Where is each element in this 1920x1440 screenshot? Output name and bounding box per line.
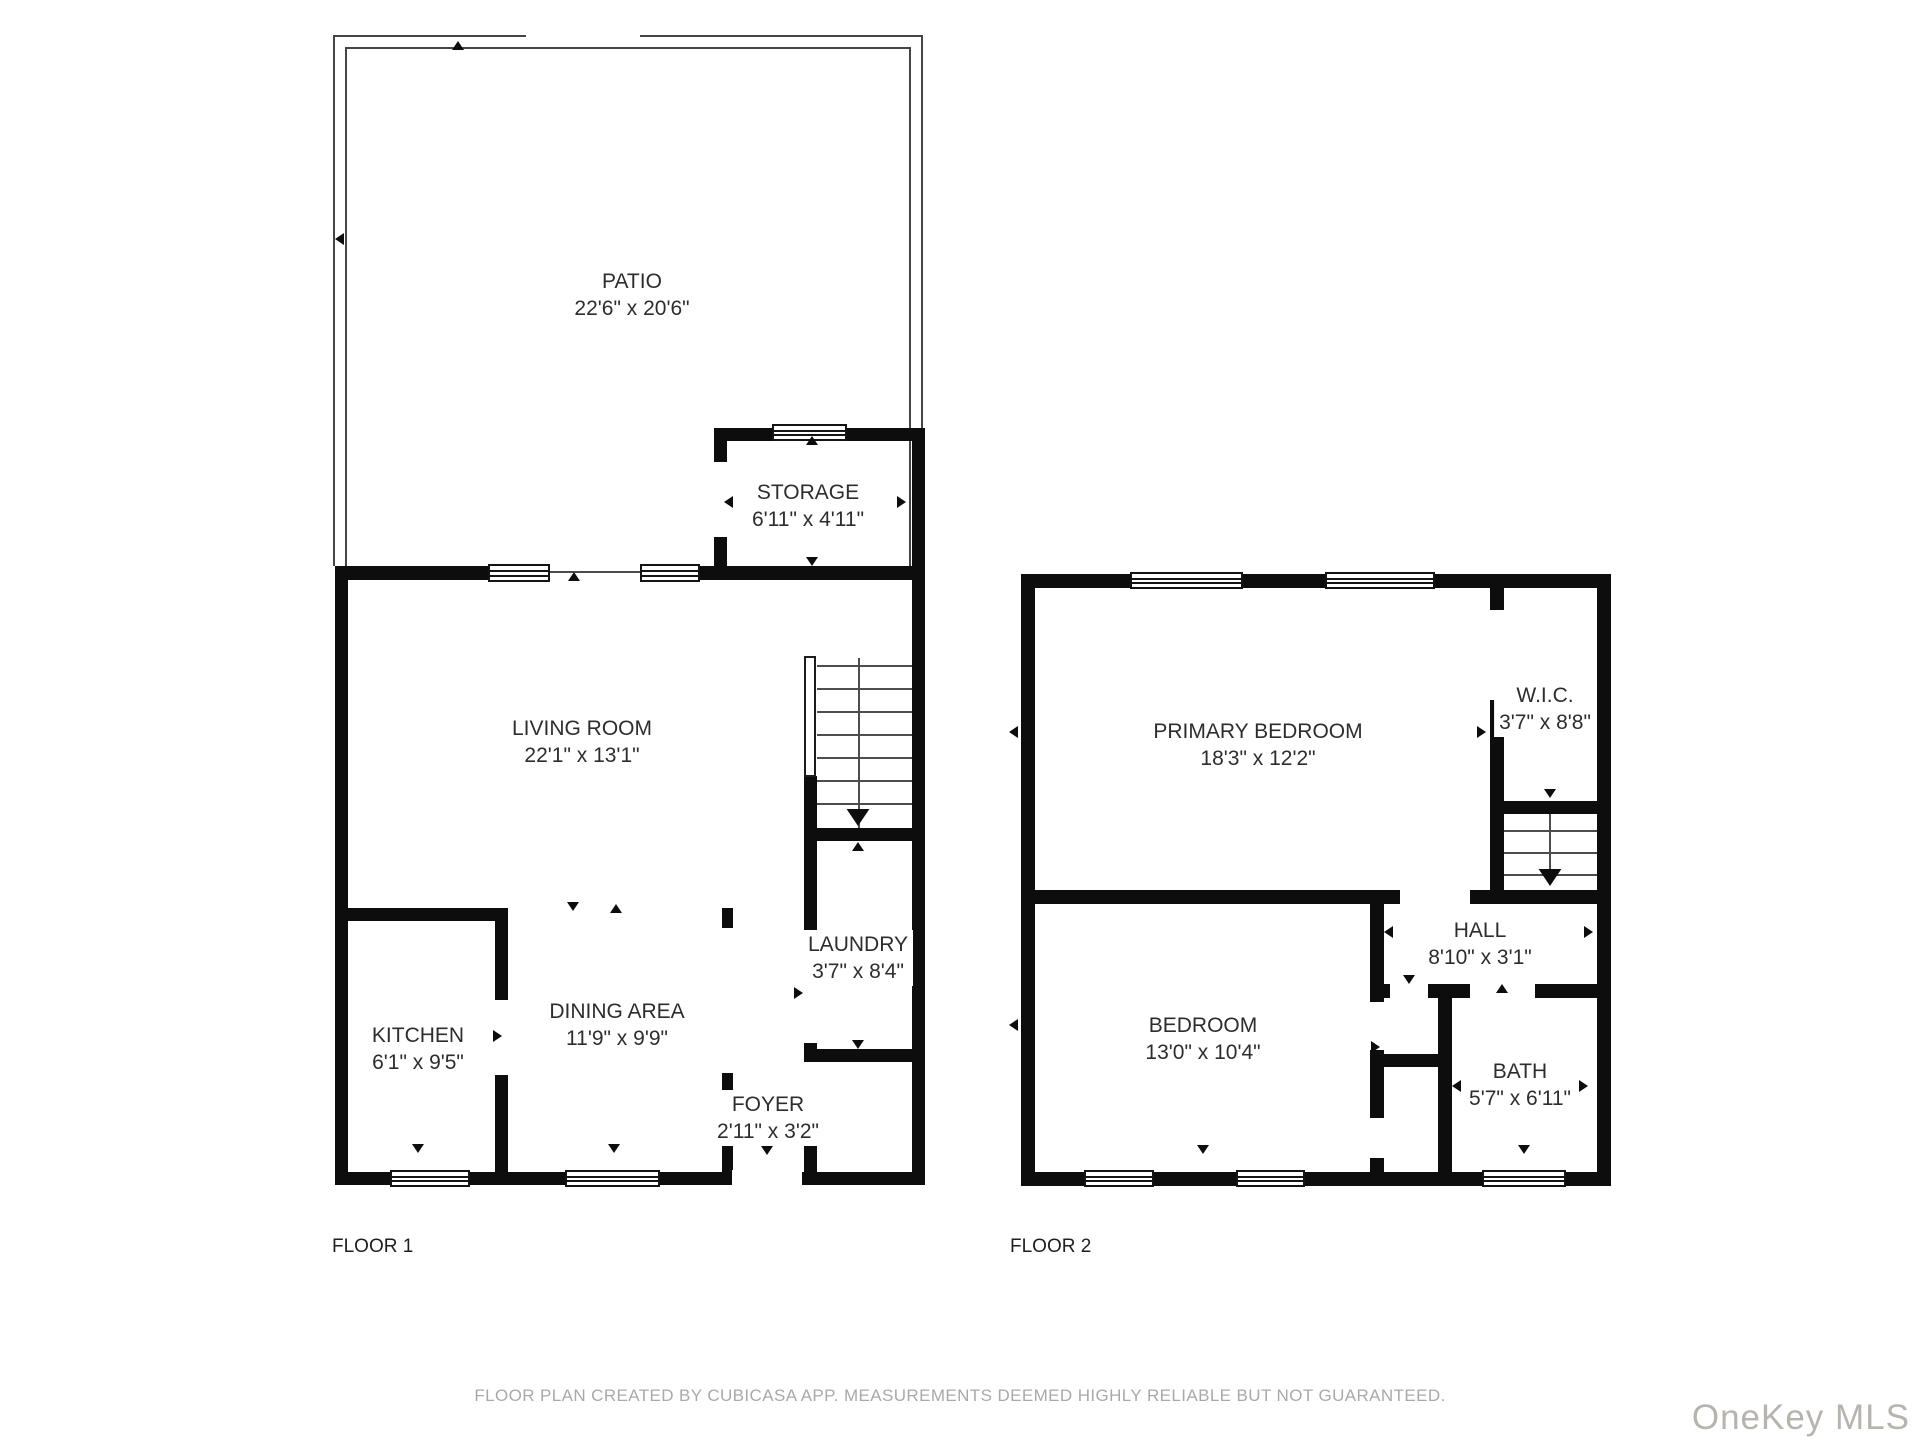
- direction-marker-icon: [1178, 892, 1190, 901]
- direction-marker-icon: [610, 904, 622, 913]
- room-name: BEDROOM: [1145, 1012, 1260, 1039]
- room-dims: 3'7" x 8'8": [1499, 709, 1591, 736]
- room-dims: 3'7" x 8'4": [808, 958, 908, 985]
- disclaimer-text: FLOOR PLAN CREATED BY CUBICASA APP. MEAS…: [0, 1386, 1920, 1406]
- room-label-living-room: LIVING ROOM 22'1" x 13'1": [507, 714, 657, 770]
- room-label-wic: W.I.C. 3'7" x 8'8": [1494, 681, 1596, 737]
- window: [1325, 572, 1435, 589]
- door-opening: [550, 564, 640, 582]
- room-label-bedroom: BEDROOM 13'0" x 10'4": [1140, 1011, 1265, 1067]
- direction-marker-icon: [452, 41, 464, 50]
- room-dims: 8'10" x 3'1": [1428, 944, 1532, 971]
- room-label-hall: HALL 8'10" x 3'1": [1423, 916, 1537, 972]
- stair-line: [817, 803, 912, 805]
- door-opening: [1400, 888, 1470, 906]
- direction-marker-icon: [1371, 1041, 1380, 1053]
- room-dims: 6'11" x 4'11": [752, 506, 864, 533]
- room-label-laundry: LAUNDRY 3'7" x 8'4": [803, 930, 913, 986]
- room-name: HALL: [1428, 917, 1532, 944]
- room-label-dining-area: DINING AREA 11'9" x 9'9": [544, 997, 689, 1053]
- direction-marker-icon: [567, 902, 579, 911]
- room-name: W.I.C.: [1499, 682, 1591, 709]
- room-dims: 22'1" x 13'1": [512, 742, 652, 769]
- direction-marker-icon: [1544, 789, 1556, 798]
- direction-marker-icon: [493, 1030, 502, 1042]
- wall: [1438, 984, 1452, 1172]
- stair-line: [817, 757, 912, 759]
- room-name: PATIO: [574, 268, 689, 295]
- floor1-label: FLOOR 1: [332, 1236, 413, 1258]
- room-dims: 18'3" x 12'2": [1153, 745, 1362, 772]
- room-name: STORAGE: [752, 479, 864, 506]
- direction-marker-icon: [1245, 576, 1257, 585]
- direction-marker-icon: [411, 910, 423, 919]
- direction-marker-icon: [1452, 1080, 1461, 1092]
- stair-line: [817, 734, 912, 736]
- direction-marker-icon: [1197, 1145, 1209, 1154]
- window: [640, 564, 700, 582]
- door-opening: [1367, 1118, 1387, 1158]
- window: [1236, 1170, 1305, 1187]
- stair-line: [817, 665, 912, 667]
- direction-marker-icon: [724, 496, 733, 508]
- room-name: LIVING ROOM: [512, 715, 652, 742]
- direction-marker-icon: [852, 1040, 864, 1049]
- room-label-primary-bedroom: PRIMARY BEDROOM 18'3" x 12'2": [1148, 717, 1367, 773]
- direction-marker-icon: [806, 557, 818, 566]
- stair-line: [550, 571, 640, 573]
- floor-plan-canvas: PATIO 22'6" x 20'6" STORAGE 6'11" x 4'11…: [0, 0, 1920, 1440]
- direction-marker-icon: [794, 987, 803, 999]
- window: [488, 564, 550, 582]
- wall: [1021, 574, 1035, 1186]
- window: [1482, 1170, 1566, 1187]
- room-name: PRIMARY BEDROOM: [1153, 718, 1362, 745]
- room-dims: 6'1" x 9'5": [372, 1049, 464, 1076]
- room-dims: 2'11" x 3'2": [717, 1118, 819, 1145]
- stair-line: [858, 658, 860, 828]
- room-dims: 22'6" x 20'6": [574, 295, 689, 322]
- door-opening: [732, 1170, 802, 1186]
- wall: [1021, 574, 1611, 588]
- direction-marker-icon: [1584, 926, 1593, 938]
- direction-marker-icon: [1518, 1145, 1530, 1154]
- direction-marker-icon: [806, 436, 818, 445]
- room-name: KITCHEN: [372, 1022, 464, 1049]
- stair-line: [817, 780, 912, 782]
- wall: [1597, 574, 1611, 1186]
- room-name: BATH: [1469, 1058, 1571, 1085]
- room-dims: 11'9" x 9'9": [549, 1025, 684, 1052]
- direction-marker-icon: [1403, 975, 1415, 984]
- room-dims: 5'7" x 6'11": [1469, 1085, 1571, 1112]
- direction-marker-icon: [412, 1144, 424, 1153]
- wall: [804, 828, 925, 841]
- room-name: FOYER: [717, 1091, 819, 1118]
- direction-marker-icon: [1537, 576, 1549, 585]
- direction-marker-icon: [337, 1030, 346, 1042]
- room-name: LAUNDRY: [808, 931, 908, 958]
- wall: [1021, 890, 1611, 904]
- room-label-foyer: FOYER 2'11" x 3'2": [712, 1090, 824, 1146]
- wall: [912, 428, 925, 1185]
- direction-marker-icon: [1496, 984, 1508, 993]
- window: [1130, 572, 1243, 589]
- door-opening: [1390, 982, 1428, 1000]
- door-opening: [526, 29, 640, 41]
- room-name: DINING AREA: [549, 998, 684, 1025]
- direction-marker-icon: [1477, 726, 1486, 738]
- window: [565, 1170, 660, 1187]
- direction-marker-icon: [608, 1144, 620, 1153]
- floor2-label: FLOOR 2: [1010, 1236, 1091, 1258]
- window: [390, 1170, 470, 1187]
- room-label-storage: STORAGE 6'11" x 4'11": [747, 478, 869, 534]
- room-label-bath: BATH 5'7" x 6'11": [1464, 1057, 1576, 1113]
- wall: [335, 566, 348, 1185]
- direction-marker-icon: [1009, 726, 1018, 738]
- onekey-mls-watermark: OneKey MLS: [1692, 1398, 1910, 1438]
- direction-marker-icon: [568, 572, 580, 581]
- direction-marker-icon: [335, 233, 344, 245]
- room-label-patio: PATIO 22'6" x 20'6": [569, 267, 694, 323]
- direction-marker-icon: [339, 617, 348, 629]
- wall: [804, 1049, 925, 1062]
- direction-marker-icon: [1579, 1080, 1588, 1092]
- stair-line: [817, 711, 912, 713]
- stair-rail: [804, 656, 816, 777]
- direction-marker-icon: [847, 809, 870, 826]
- wall: [1490, 801, 1611, 814]
- direction-marker-icon: [852, 842, 864, 851]
- room-dims: 13'0" x 10'4": [1145, 1039, 1260, 1066]
- window: [1084, 1170, 1154, 1187]
- stair-line: [817, 688, 912, 690]
- direction-marker-icon: [761, 1146, 773, 1155]
- direction-marker-icon: [1009, 1019, 1018, 1031]
- direction-marker-icon: [1505, 892, 1517, 901]
- direction-marker-icon: [897, 496, 906, 508]
- wall: [804, 1145, 817, 1172]
- wall: [722, 908, 733, 928]
- direction-marker-icon: [1539, 869, 1562, 886]
- room-label-kitchen: KITCHEN 6'1" x 9'5": [367, 1021, 469, 1077]
- direction-marker-icon: [1384, 926, 1393, 938]
